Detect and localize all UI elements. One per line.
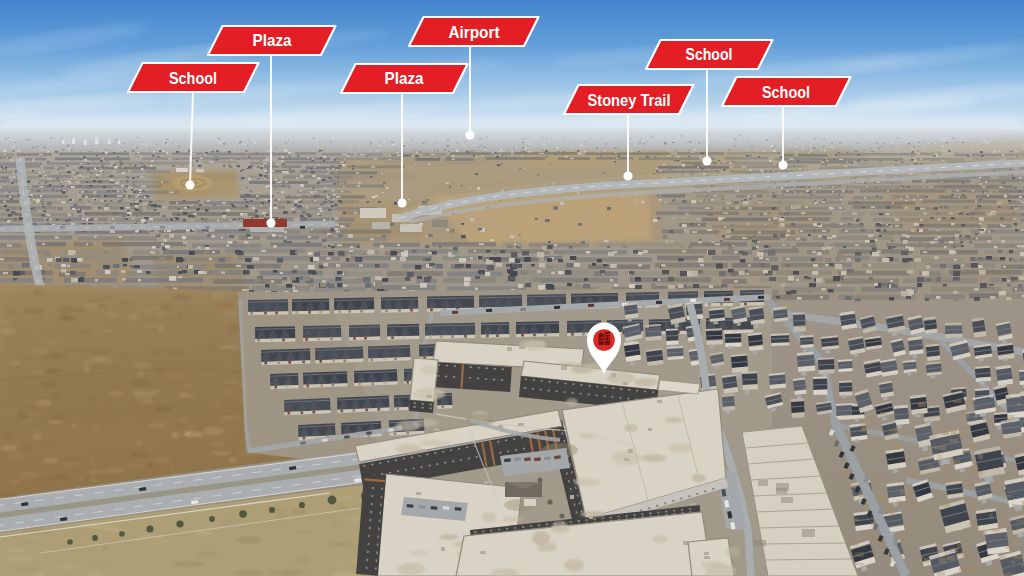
- svg-text:Airport: Airport: [449, 23, 500, 42]
- svg-text:Plaza: Plaza: [385, 69, 424, 88]
- svg-text:School: School: [169, 69, 217, 88]
- svg-text:Plaza: Plaza: [253, 31, 292, 50]
- svg-text:Stoney Trail: Stoney Trail: [588, 91, 671, 110]
- svg-text:School: School: [686, 45, 733, 64]
- svg-text:School: School: [762, 83, 810, 102]
